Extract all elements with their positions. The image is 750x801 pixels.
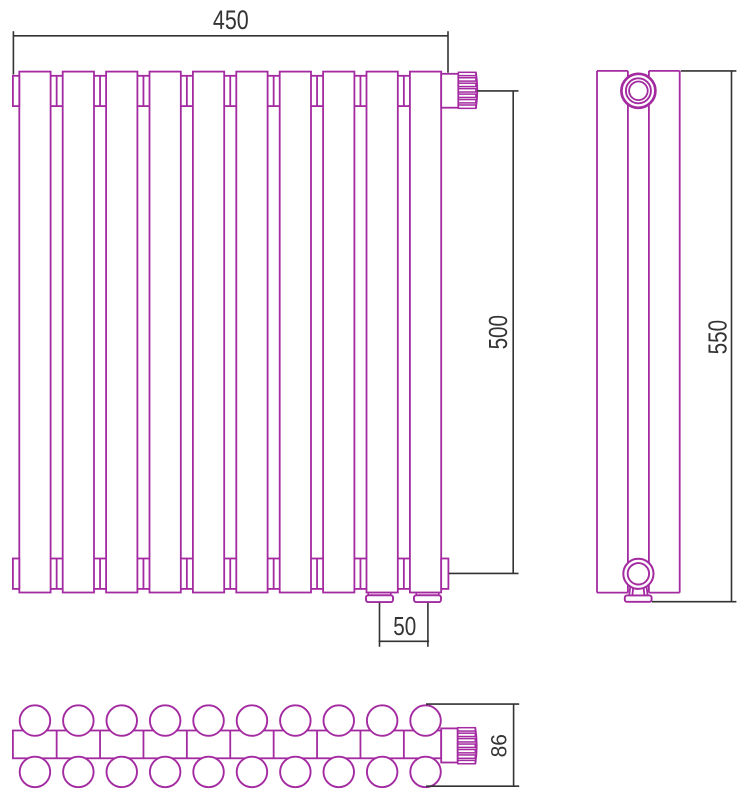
svg-text:500: 500	[484, 315, 513, 349]
svg-text:550: 550	[703, 320, 732, 354]
svg-text:450: 450	[213, 6, 249, 36]
svg-text:50: 50	[393, 612, 416, 641]
svg-text:86: 86	[486, 734, 512, 757]
